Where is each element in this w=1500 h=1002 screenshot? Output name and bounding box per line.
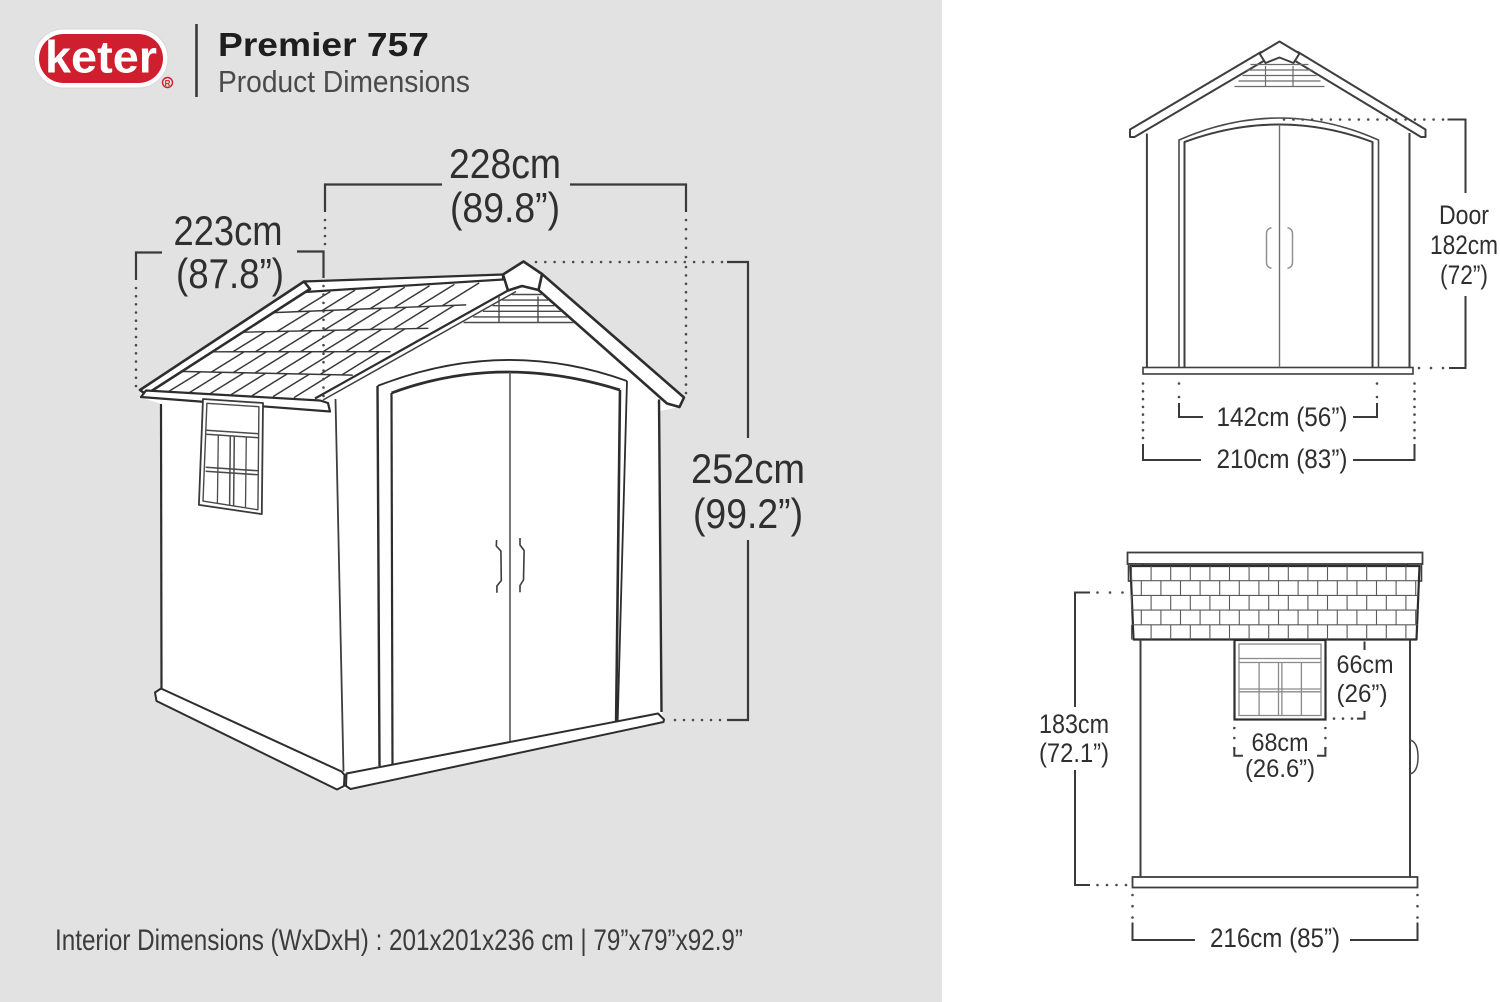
svg-text:210cm (83”): 210cm (83”)	[1217, 444, 1348, 474]
svg-text:Premier 757: Premier 757	[218, 26, 429, 63]
svg-text:keter: keter	[45, 32, 157, 83]
svg-text:Product Dimensions: Product Dimensions	[218, 64, 470, 99]
svg-text:(89.8”): (89.8”)	[450, 184, 560, 231]
svg-text:142cm (56”): 142cm (56”)	[1217, 402, 1348, 432]
svg-text:Interior Dimensions (WxDxH) :: Interior Dimensions (WxDxH) : 201x201x23…	[55, 924, 743, 957]
svg-text:66cm: 66cm	[1337, 651, 1394, 679]
svg-text:68cm: 68cm	[1252, 729, 1309, 757]
svg-text:182cm: 182cm	[1430, 230, 1498, 260]
svg-text:252cm: 252cm	[691, 445, 805, 492]
svg-text:(26”): (26”)	[1337, 680, 1388, 708]
svg-text:(72.1”): (72.1”)	[1039, 738, 1109, 768]
svg-text:(72”): (72”)	[1440, 260, 1488, 290]
svg-text:(87.8”): (87.8”)	[176, 250, 284, 297]
svg-text:(99.2”): (99.2”)	[693, 490, 803, 537]
svg-text:R: R	[165, 79, 171, 88]
svg-text:Door: Door	[1439, 200, 1489, 230]
svg-text:216cm (85”): 216cm (85”)	[1210, 923, 1340, 953]
svg-text:183cm: 183cm	[1039, 709, 1109, 739]
svg-text:(26.6”): (26.6”)	[1245, 755, 1315, 783]
svg-text:223cm: 223cm	[174, 207, 283, 254]
svg-text:228cm: 228cm	[449, 140, 561, 187]
